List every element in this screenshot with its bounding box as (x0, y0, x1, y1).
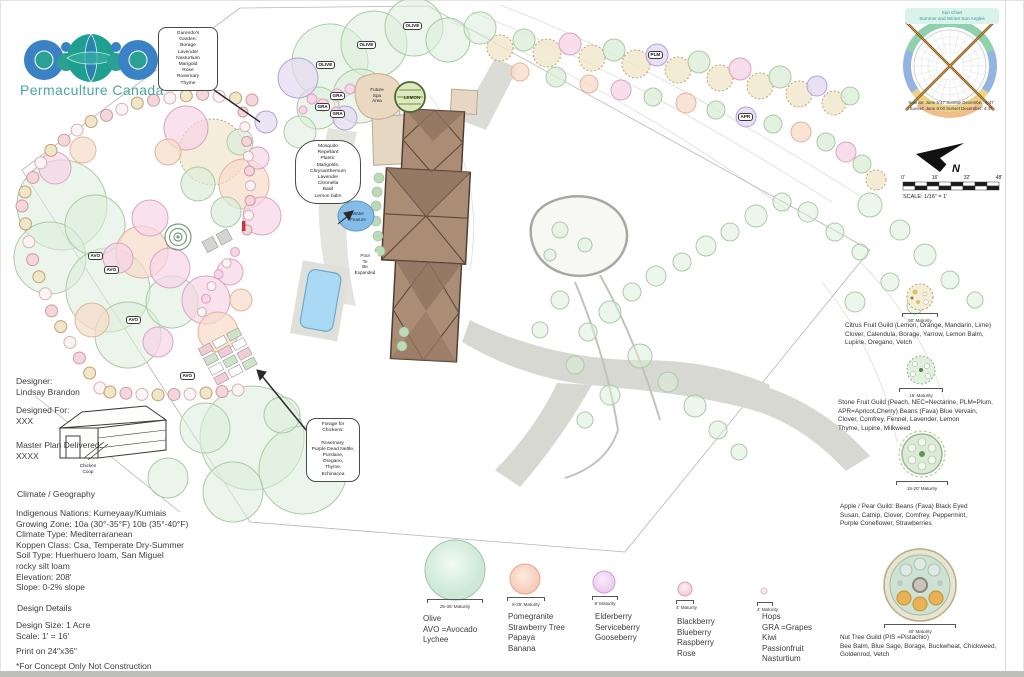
svg-text:16': 16' (932, 175, 939, 181)
svg-text:0': 0' (901, 175, 905, 181)
designer-label: Designer: (16, 376, 80, 387)
nut-tree-guild-text: Nut Tree Guild (PIS =Pistachio) Bee Balm… (840, 634, 1024, 660)
maturity-marker: 15-20' Maturity (896, 481, 948, 491)
svg-text:32': 32' (964, 175, 971, 181)
gate-marker (242, 221, 246, 231)
spa-label: Future Spa Area (362, 86, 392, 105)
designed-for-label: Designed For: (16, 405, 69, 416)
legend-circle-tiny (678, 582, 692, 596)
lemon-label: LEMON (399, 94, 425, 102)
maturity-marker: 40' Maturity (884, 624, 956, 634)
details-disclaimer: *For Concept Only Not Construction (16, 661, 152, 672)
legend-species-tiny: Blackberry Blueberry Raspberry Rose (677, 617, 715, 659)
water-feature-label: Water Feature (342, 210, 374, 223)
apple-pear-guild-text: Apple / Pear Guild: Beans (Fava) Black E… (840, 503, 1024, 529)
climate-title: Climate / Geography (17, 489, 95, 499)
north-arrow-icon: N (916, 143, 964, 175)
orchard-band (487, 29, 886, 190)
callout-mosquito-plants: Mosquito Repellant Plants: Marigolds, Ch… (295, 140, 361, 204)
legend-circle-medium (510, 564, 540, 594)
maturity-marker: 25-35' Maturity (427, 599, 483, 609)
legend-species-vine: Hops GRA =Grapes Kiwi Passionfruit Nastu… (762, 612, 812, 665)
citrus-guild-text: Citrus Fruit Guild (Lemon, Orange, Manda… (845, 322, 1024, 348)
maturity-marker: 4' Maturity (757, 602, 773, 612)
patio-squares (202, 229, 232, 253)
olive-pill: OLIVE (403, 22, 422, 30)
legend-circle-large (425, 540, 485, 600)
callout-gurendos-garden: Gurendo's Garden: Borage Lavender Nastur… (158, 27, 218, 91)
apple-pear-guild-circle (899, 431, 945, 477)
maturity-marker: 15' Maturity (899, 388, 943, 398)
apricot-pill: APR (738, 113, 753, 121)
avocado-pill: AVO (104, 266, 119, 274)
legend-species-large: Olive AVO =Avocado Lychee (423, 614, 477, 646)
nut-tree-guild-circle (884, 549, 956, 621)
legend-species-medium: Pomegranite Strawberry Tree Papaya Banan… (508, 612, 565, 654)
pond (531, 196, 627, 276)
svg-text:48': 48' (996, 175, 1003, 181)
pool-label: Pool To Be Expanded (352, 252, 378, 276)
citrus-guild-circle (907, 284, 933, 310)
legend-circle-vine (761, 588, 767, 594)
maturity-marker: 4' Maturity (676, 600, 694, 610)
maturity-marker: 8' Maturity (592, 596, 618, 606)
avocado-pill: AVO (126, 316, 141, 324)
svg-text:SCALE: 1/16" = 1': SCALE: 1/16" = 1' (903, 194, 947, 200)
details-print: Print on 24"x36" (16, 646, 77, 657)
details-title: Design Details (17, 603, 72, 613)
maturity-marker: 8-25' Maturity (507, 597, 545, 607)
climate-body: Indigenous Nations: Kumeyaay/Kumiais Gro… (16, 508, 231, 593)
north-label: N (952, 163, 961, 175)
grape-pill: GRA (330, 92, 345, 100)
grape-pill: GRA (330, 110, 345, 118)
stone-fruit-guild-text: Stone Fruit Guild (Peach, NEC=Nectarine,… (838, 399, 1022, 433)
brand-name: Permaculture Canada (20, 82, 164, 98)
pool-area (290, 260, 350, 341)
stone-fruit-guild-circle (907, 356, 935, 384)
avocado-pill: AVO (88, 252, 103, 260)
plum-pill: PLM (648, 51, 663, 59)
scale-bar: 0' 16' 32' 48' SCALE: 1/16" = 1' (901, 175, 1002, 200)
brand-logo-icon (24, 34, 158, 82)
avocado-pill: AVO (180, 372, 195, 380)
olive-pill: OLIVE (357, 41, 376, 49)
designer-name: Lindsay Brandon (16, 387, 80, 398)
grape-pill: GRA (315, 103, 330, 111)
plan-sheet: N 0' 16' 32' 48' SCALE: 1/16" = 1' (0, 0, 1024, 677)
legend-circles (425, 540, 767, 600)
maturity-marker: 50' Maturity (902, 313, 938, 323)
chicken-coop-label: Chicken Coop (68, 462, 108, 475)
delivered-label: Master Plan Delivered: (16, 440, 102, 451)
olive-pill: OLIVE (316, 61, 335, 69)
designed-for-block: Designed For: XXX (16, 405, 69, 426)
screen-bottom-bar (0, 671, 1024, 677)
delivered-block: Master Plan Delivered: XXXX (16, 440, 102, 461)
delivered-value: XXXX (16, 451, 102, 462)
sun-chart-header: Sun Chart Summer and Winter Sun Angles (905, 8, 999, 24)
designed-for-value: XXX (16, 416, 69, 427)
legend-circle-small (593, 571, 615, 593)
designer-block: Designer: Lindsay Brandon (16, 376, 80, 397)
details-body: Design Size: 1 Acre Scale: 1' = 16' (16, 620, 90, 641)
legend-species-small: Elderberry Serviceberry Gooseberry (595, 612, 640, 644)
herb-spiral (165, 224, 191, 250)
sun-chart-captions: Sunrise: June 5:47 Sunrise December: 6:4… (888, 100, 1014, 113)
callout-chicken-forage: Forage for Chickens: Rosemary, Purple De… (306, 418, 360, 482)
